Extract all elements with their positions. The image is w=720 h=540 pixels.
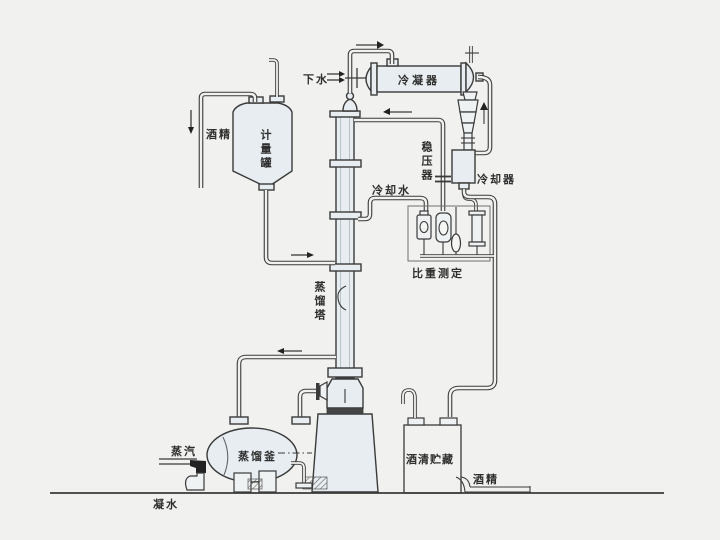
label-metering-tank: 计量罐 [258,129,271,171]
label-cooling-water: 冷却水 [372,182,411,198]
label-alcohol-feed: 酒精 [206,126,232,142]
steam-valve [190,460,206,473]
label-condensate-water: 凝水 [153,496,179,512]
label-alcohol-out: 酒精 [473,471,499,487]
label-alcohol-storage: 酒清贮藏 [406,451,454,467]
cooler-vessel [452,150,475,189]
pipe-metering-to-column [266,190,335,263]
density-measurement-group [408,206,494,261]
label-cooler: 冷却器 [477,171,516,187]
flow-arrow-up [480,102,488,124]
metering-tank-vent [269,60,277,97]
label-density-measurement: 比重测定 [412,265,464,281]
segmented-reducer [458,92,478,150]
label-pressure-stabilizer: 稳压器 [419,141,432,183]
drain-water-nozzle [327,68,366,88]
flow-arrow-left-stabilizer [383,108,412,115]
label-drain-water: 下水 [303,71,329,87]
hydrometer-float [452,234,461,252]
flow-arrow-right-feed [291,252,314,258]
label-condenser: 冷凝器 [398,72,440,88]
condenser-vent-pipe [465,46,479,63]
process-flow-diagram: 下水 冷凝器 稳压器 冷却器 冷却水 比重测定 计量罐 酒精 蒸馏塔 蒸汽 蒸馏… [0,0,720,540]
storage-tank-gooseneck [403,390,415,418]
label-distillation-kettle: 蒸馏釜 [238,448,277,464]
diagram-linework [0,0,720,540]
steam-trap [186,473,204,490]
pipe-condenser-to-cooler [475,77,490,153]
flow-arrow-right-top [356,41,384,49]
flow-arrow-down-feed [188,110,194,134]
column-top-dome [343,99,357,111]
kettle-drain-pipe [291,463,312,488]
pipe-kettle-vapor-riser [300,382,327,417]
label-distillation-column: 蒸馏塔 [312,281,325,323]
label-steam: 蒸汽 [171,443,197,459]
steam-line [159,459,206,490]
pipe-cooling-water [358,198,426,219]
flow-arrow-left-kettle [277,348,302,354]
